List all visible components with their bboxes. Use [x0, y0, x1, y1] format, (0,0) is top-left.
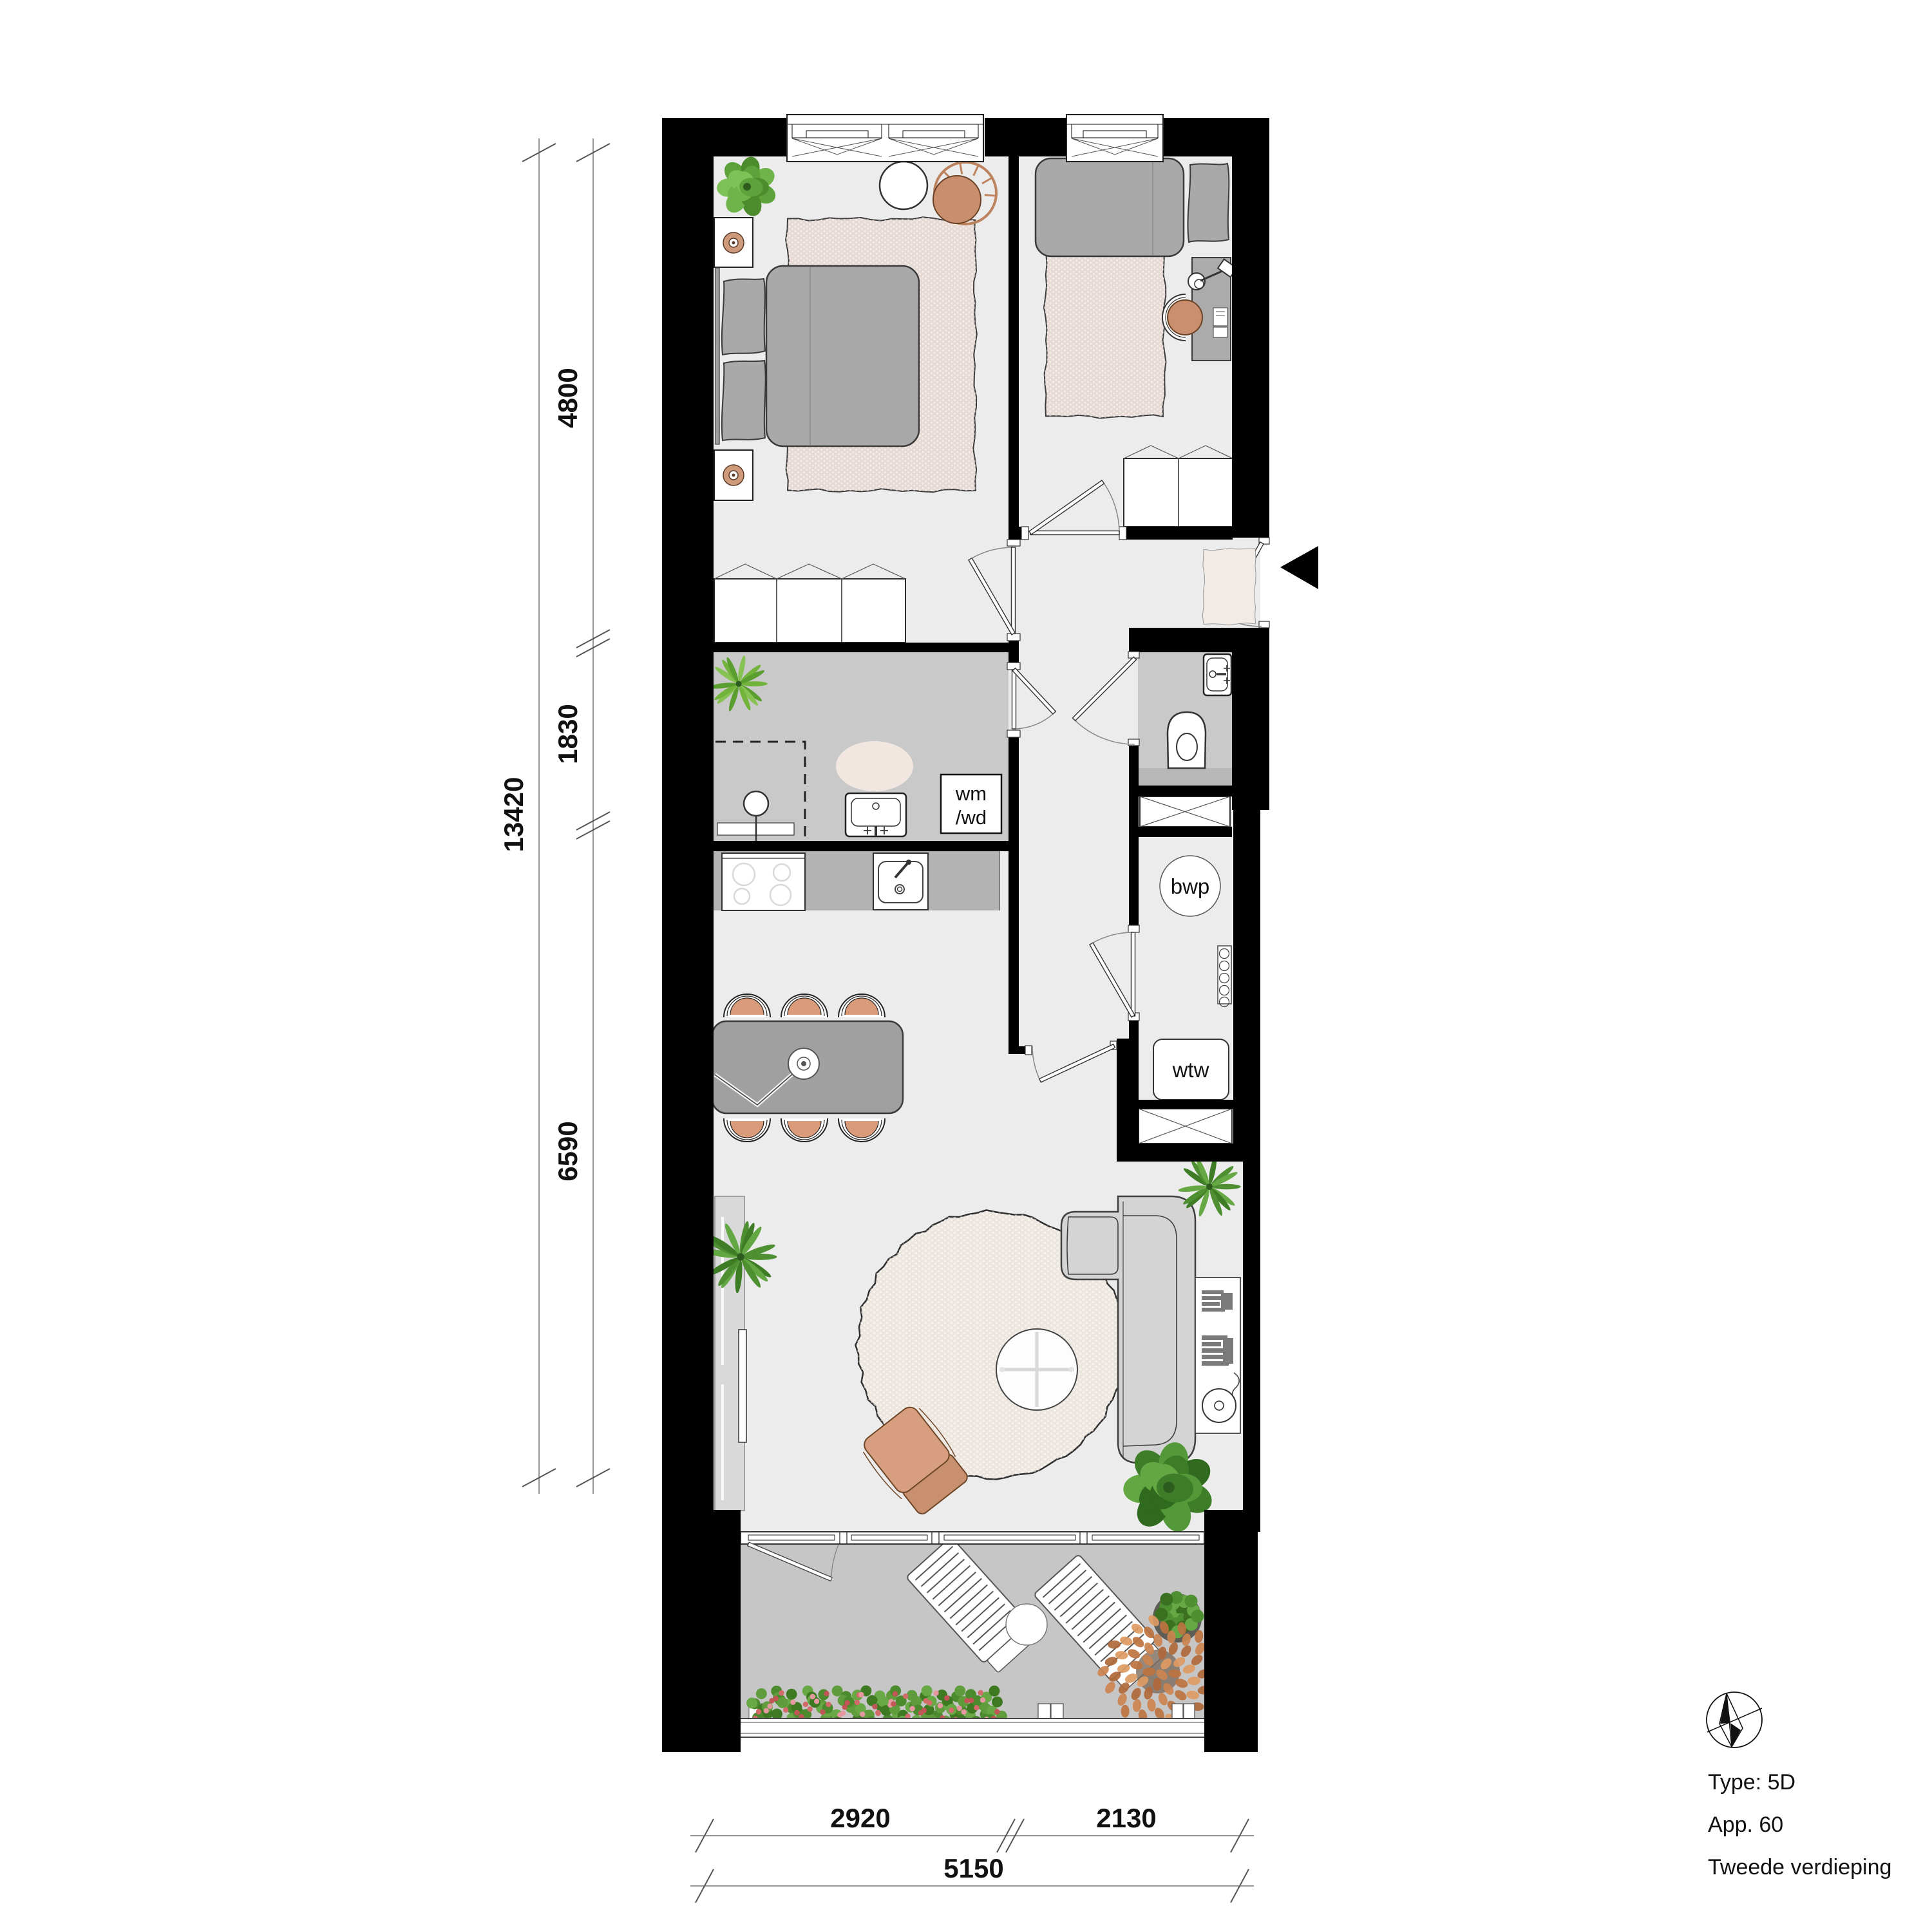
svg-text:2920: 2920	[830, 1803, 890, 1833]
svg-text:/wd: /wd	[956, 806, 987, 829]
svg-text:Type: 5D: Type: 5D	[1708, 1770, 1795, 1794]
svg-text:5150: 5150	[943, 1853, 1003, 1883]
svg-text:6590: 6590	[553, 1121, 583, 1181]
svg-text:wtw: wtw	[1172, 1058, 1209, 1082]
svg-text:2130: 2130	[1096, 1803, 1156, 1833]
svg-text:13420: 13420	[498, 777, 529, 852]
svg-text:bwp: bwp	[1171, 874, 1210, 898]
svg-text:1830: 1830	[553, 704, 583, 764]
svg-text:App. 60: App. 60	[1708, 1813, 1783, 1837]
svg-text:wm: wm	[955, 782, 987, 805]
svg-text:Tweede verdieping: Tweede verdieping	[1708, 1855, 1891, 1879]
svg-text:4800: 4800	[553, 368, 583, 428]
